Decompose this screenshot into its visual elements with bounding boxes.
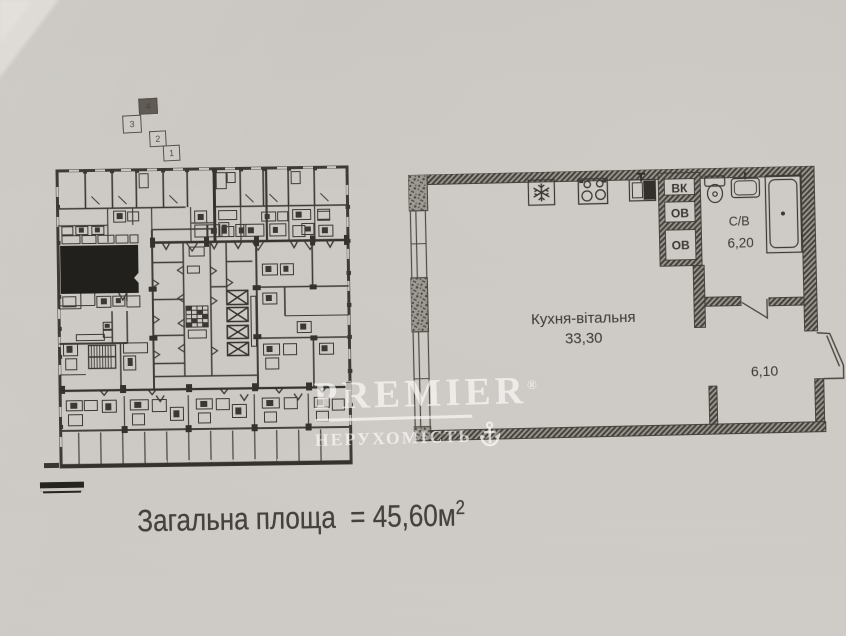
svg-text:6,20: 6,20	[727, 235, 754, 251]
svg-text:ВК: ВК	[671, 181, 688, 195]
svg-text:С/В: С/В	[729, 214, 750, 228]
svg-text:Кухня-вітальня: Кухня-вітальня	[531, 309, 636, 328]
svg-text:ОВ: ОВ	[671, 206, 690, 220]
svg-text:33,30: 33,30	[565, 330, 603, 348]
svg-text:6,10: 6,10	[751, 363, 779, 380]
svg-text:ОВ: ОВ	[672, 238, 691, 252]
